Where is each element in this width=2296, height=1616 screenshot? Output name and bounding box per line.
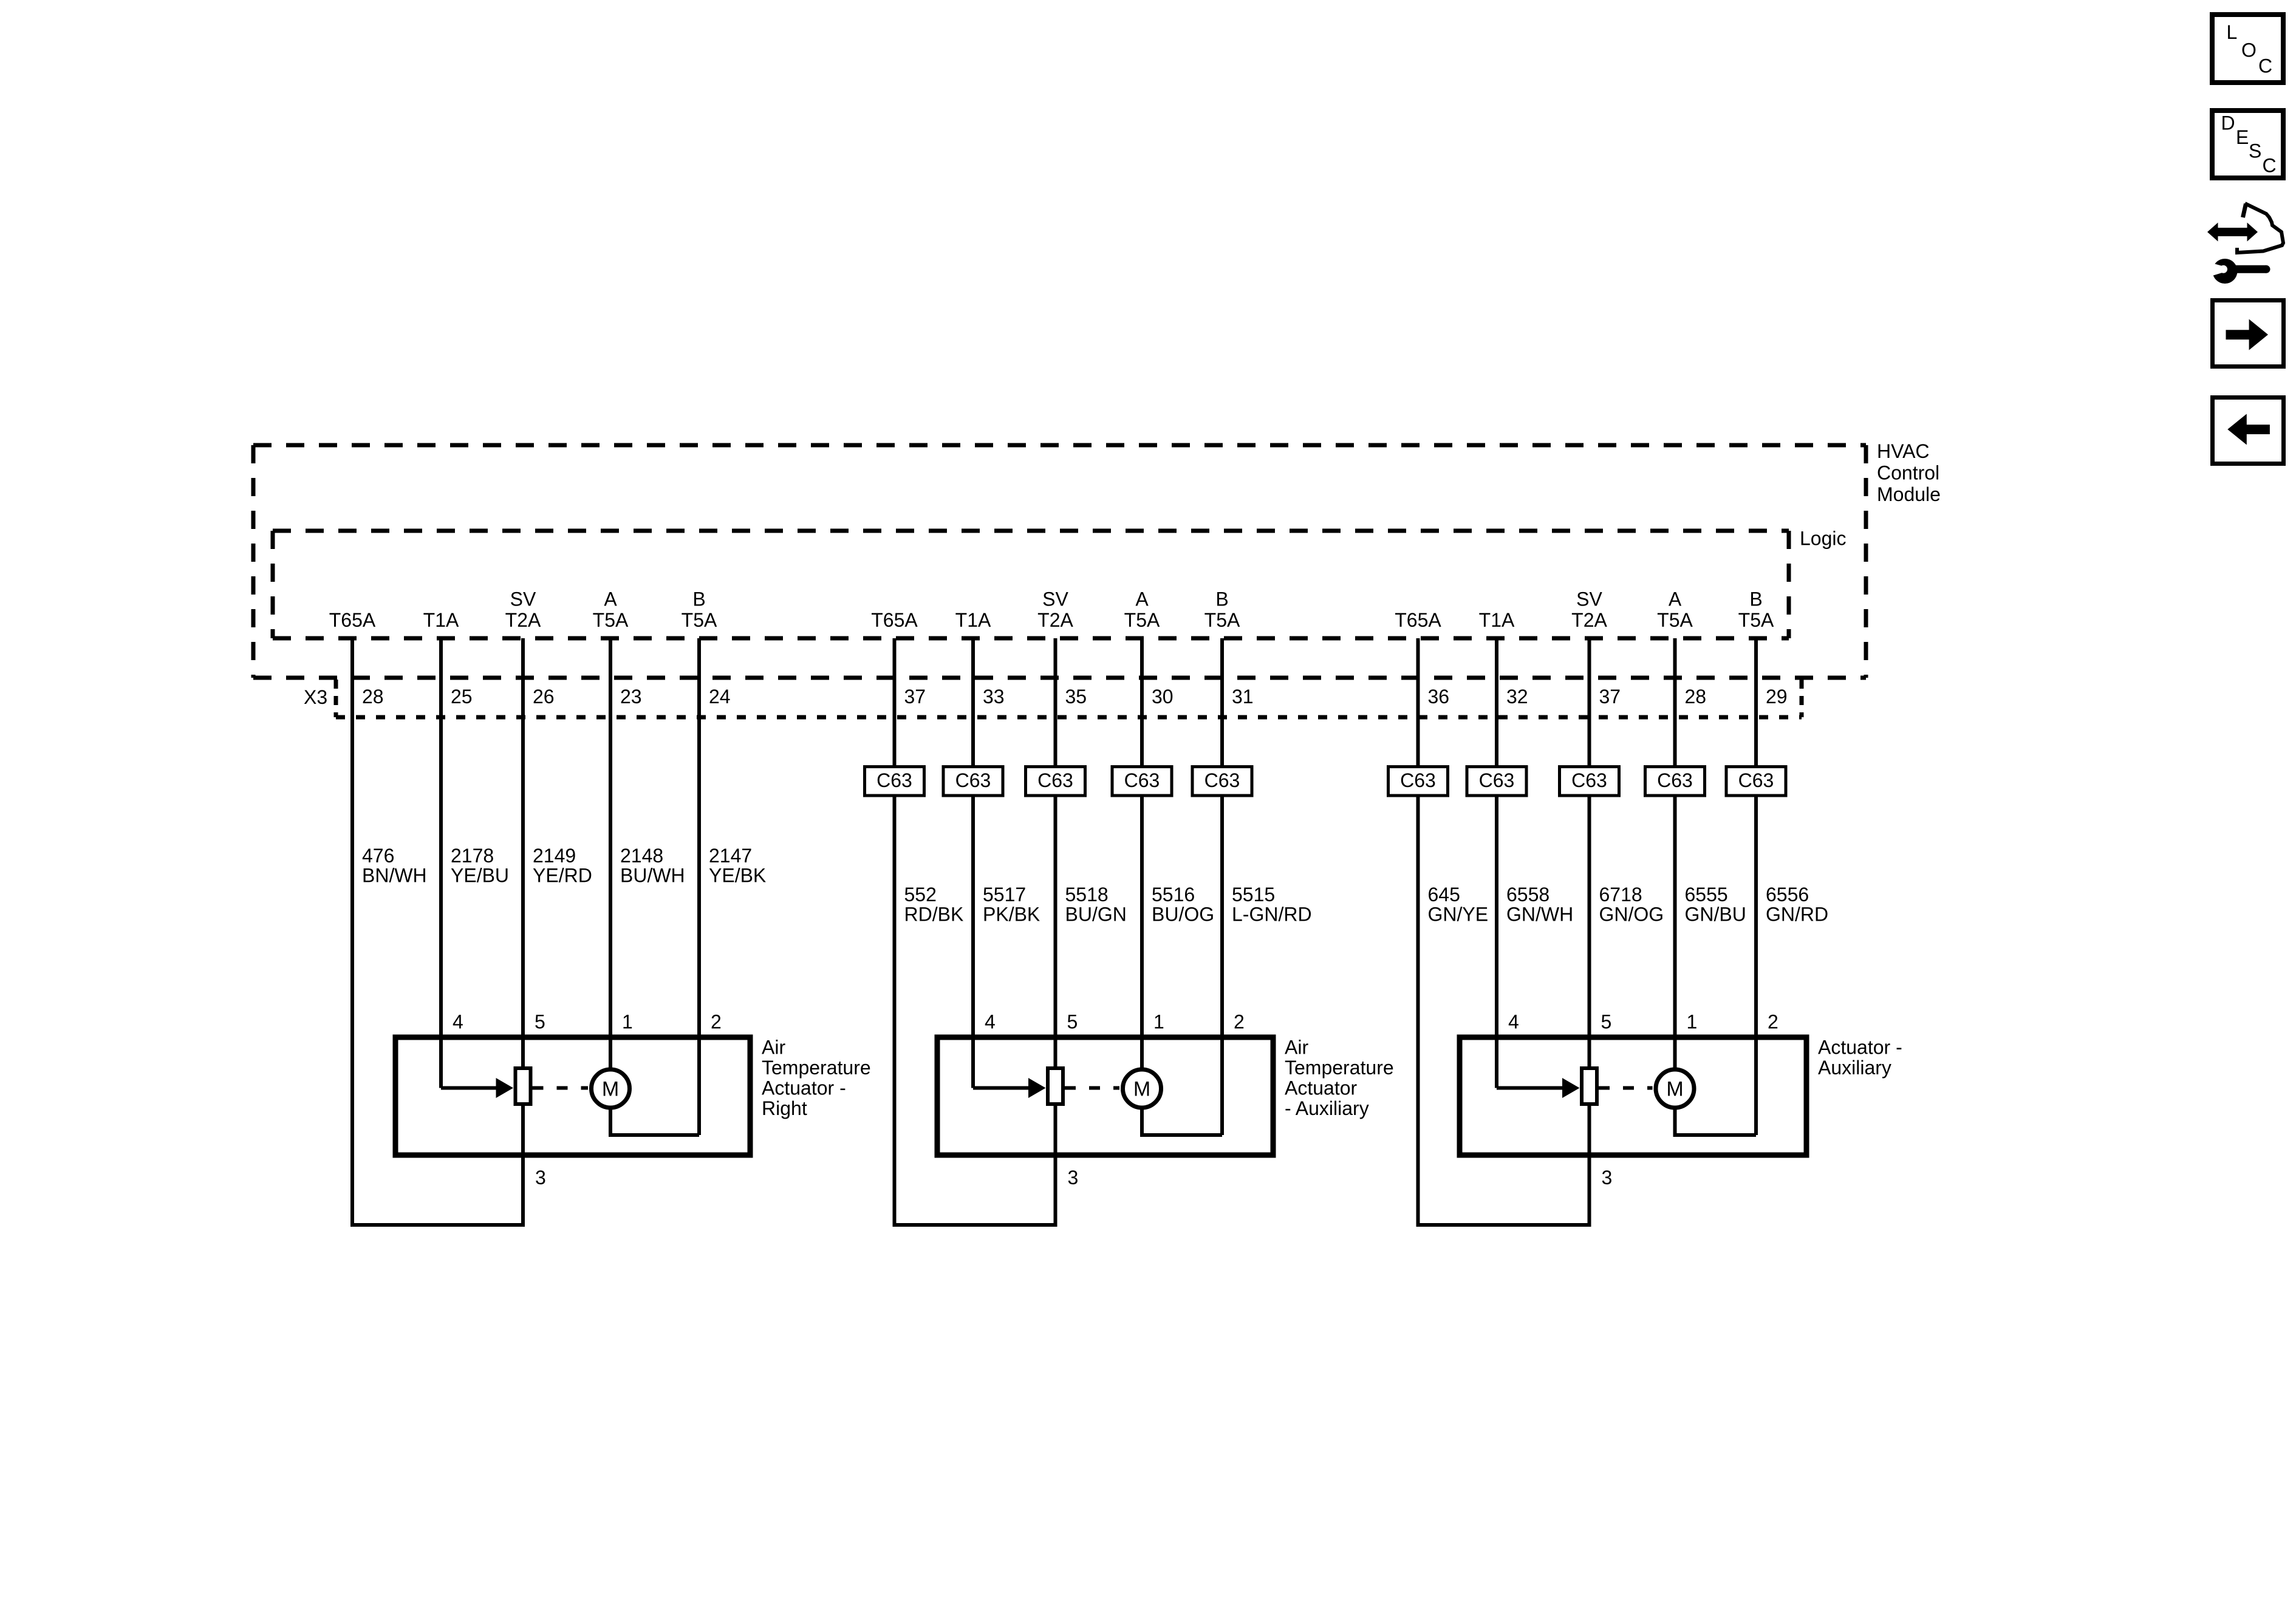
svg-text:T5A: T5A (1204, 609, 1240, 631)
svg-text:2: 2 (1768, 1011, 1778, 1033)
svg-text:Logic: Logic (1800, 528, 1847, 550)
svg-text:C: C (2258, 55, 2272, 77)
svg-text:552: 552 (904, 884, 937, 905)
svg-text:T5A: T5A (593, 609, 629, 631)
svg-text:6555: 6555 (1685, 884, 1728, 905)
svg-text:BU/WH: BU/WH (620, 865, 685, 887)
svg-text:Control: Control (1877, 462, 1939, 484)
svg-text:4: 4 (453, 1011, 463, 1033)
svg-text:C63: C63 (1479, 769, 1515, 791)
svg-text:C63: C63 (1204, 769, 1240, 791)
svg-text:A: A (1135, 588, 1149, 610)
svg-text:SV: SV (1042, 588, 1068, 610)
svg-text:RD/BK: RD/BK (904, 904, 964, 926)
svg-text:A: A (1669, 588, 1682, 610)
svg-text:E: E (2236, 126, 2249, 148)
svg-text:YE/BK: YE/BK (709, 865, 766, 887)
svg-text:4: 4 (1508, 1011, 1519, 1033)
svg-text:T5A: T5A (682, 609, 717, 631)
svg-text:2178: 2178 (451, 845, 494, 867)
svg-text:2149: 2149 (533, 845, 576, 867)
svg-text:30: 30 (1152, 686, 1174, 707)
svg-text:6718: 6718 (1599, 884, 1642, 905)
svg-text:29: 29 (1766, 686, 1788, 707)
svg-text:6558: 6558 (1506, 884, 1549, 905)
svg-text:23: 23 (620, 686, 642, 707)
svg-text:C63: C63 (955, 769, 991, 791)
svg-text:Auxiliary: Auxiliary (1818, 1057, 1891, 1079)
svg-text:33: 33 (983, 686, 1005, 707)
svg-text:GN/WH: GN/WH (1506, 904, 1573, 926)
svg-text:C63: C63 (1738, 769, 1774, 791)
svg-text:37: 37 (904, 686, 926, 707)
svg-text:31: 31 (1232, 686, 1254, 707)
svg-text:4: 4 (985, 1011, 996, 1033)
svg-text:B: B (692, 588, 705, 610)
svg-text:T65A: T65A (871, 609, 918, 631)
svg-text:- Auxiliary: - Auxiliary (1285, 1097, 1369, 1119)
svg-text:25: 25 (451, 686, 473, 707)
svg-text:Right: Right (762, 1097, 807, 1119)
svg-text:C: C (2263, 155, 2277, 177)
svg-text:GN/BU: GN/BU (1685, 904, 1746, 926)
svg-text:A: A (604, 588, 617, 610)
svg-text:BU/OG: BU/OG (1152, 904, 1214, 926)
svg-text:T2A: T2A (505, 609, 541, 631)
svg-text:1: 1 (1687, 1011, 1698, 1033)
svg-text:T5A: T5A (1657, 609, 1693, 631)
svg-text:S: S (2249, 140, 2261, 162)
svg-text:X3: X3 (304, 686, 327, 708)
svg-text:2: 2 (711, 1011, 722, 1033)
svg-text:PK/BK: PK/BK (983, 904, 1040, 926)
svg-text:36: 36 (1428, 686, 1450, 707)
svg-text:T1A: T1A (1479, 609, 1515, 631)
svg-text:Actuator -: Actuator - (1818, 1037, 1902, 1059)
svg-text:Actuator -: Actuator - (762, 1077, 846, 1099)
svg-text:M: M (1133, 1078, 1150, 1101)
svg-text:T5A: T5A (1738, 609, 1774, 631)
svg-text:5517: 5517 (983, 884, 1026, 905)
svg-text:5: 5 (535, 1011, 545, 1033)
svg-text:26: 26 (533, 686, 555, 707)
svg-text:28: 28 (1685, 686, 1707, 707)
svg-text:24: 24 (709, 686, 731, 707)
svg-text:O: O (2241, 39, 2257, 61)
svg-text:SV: SV (1576, 588, 1602, 610)
svg-text:B: B (1749, 588, 1762, 610)
svg-text:T1A: T1A (423, 609, 459, 631)
svg-text:645: 645 (1428, 884, 1460, 905)
svg-text:28: 28 (362, 686, 384, 707)
svg-text:T65A: T65A (1395, 609, 1441, 631)
svg-text:T2A: T2A (1571, 609, 1607, 631)
svg-text:1: 1 (622, 1011, 633, 1033)
svg-text:T1A: T1A (955, 609, 991, 631)
svg-text:1: 1 (1153, 1011, 1164, 1033)
svg-text:2148: 2148 (620, 845, 663, 867)
svg-text:Temperature: Temperature (1285, 1057, 1394, 1079)
svg-text:D: D (2221, 112, 2235, 134)
svg-text:37: 37 (1599, 686, 1621, 707)
svg-text:2147: 2147 (709, 845, 752, 867)
svg-text:C63: C63 (876, 769, 912, 791)
svg-text:3: 3 (535, 1167, 546, 1188)
svg-text:Air: Air (762, 1037, 785, 1059)
svg-text:C63: C63 (1571, 769, 1607, 791)
svg-text:B: B (1215, 588, 1228, 610)
svg-text:T5A: T5A (1124, 609, 1160, 631)
svg-text:Module: Module (1877, 483, 1941, 505)
svg-text:C63: C63 (1037, 769, 1073, 791)
svg-text:GN/OG: GN/OG (1599, 904, 1664, 926)
svg-text:32: 32 (1506, 686, 1528, 707)
svg-text:L-GN/RD: L-GN/RD (1232, 904, 1312, 926)
svg-text:GN/RD: GN/RD (1766, 904, 1828, 926)
svg-text:35: 35 (1065, 686, 1087, 707)
svg-text:HVAC: HVAC (1877, 440, 1930, 462)
svg-text:T2A: T2A (1037, 609, 1073, 631)
svg-text:3: 3 (1602, 1167, 1613, 1188)
svg-text:3: 3 (1068, 1167, 1079, 1188)
svg-text:SV: SV (510, 588, 536, 610)
svg-text:M: M (602, 1078, 619, 1101)
svg-text:T65A: T65A (329, 609, 376, 631)
svg-text:M: M (1666, 1078, 1683, 1101)
svg-text:5: 5 (1601, 1011, 1612, 1033)
svg-text:YE/BU: YE/BU (451, 865, 509, 887)
svg-text:GN/YE: GN/YE (1428, 904, 1489, 926)
svg-text:Actuator: Actuator (1285, 1077, 1358, 1099)
svg-text:Temperature: Temperature (762, 1057, 871, 1079)
svg-text:5518: 5518 (1065, 884, 1109, 905)
svg-text:Air: Air (1285, 1037, 1308, 1059)
svg-text:L: L (2227, 21, 2238, 43)
svg-text:BN/WH: BN/WH (362, 865, 427, 887)
svg-text:C63: C63 (1657, 769, 1693, 791)
svg-text:476: 476 (362, 845, 394, 867)
svg-text:C63: C63 (1400, 769, 1436, 791)
svg-text:5516: 5516 (1152, 884, 1195, 905)
svg-text:5: 5 (1067, 1011, 1078, 1033)
svg-text:BU/GN: BU/GN (1065, 904, 1127, 926)
svg-text:YE/RD: YE/RD (533, 865, 592, 887)
svg-text:6556: 6556 (1766, 884, 1809, 905)
svg-text:C63: C63 (1124, 769, 1160, 791)
svg-text:5515: 5515 (1232, 884, 1275, 905)
svg-text:2: 2 (1234, 1011, 1245, 1033)
